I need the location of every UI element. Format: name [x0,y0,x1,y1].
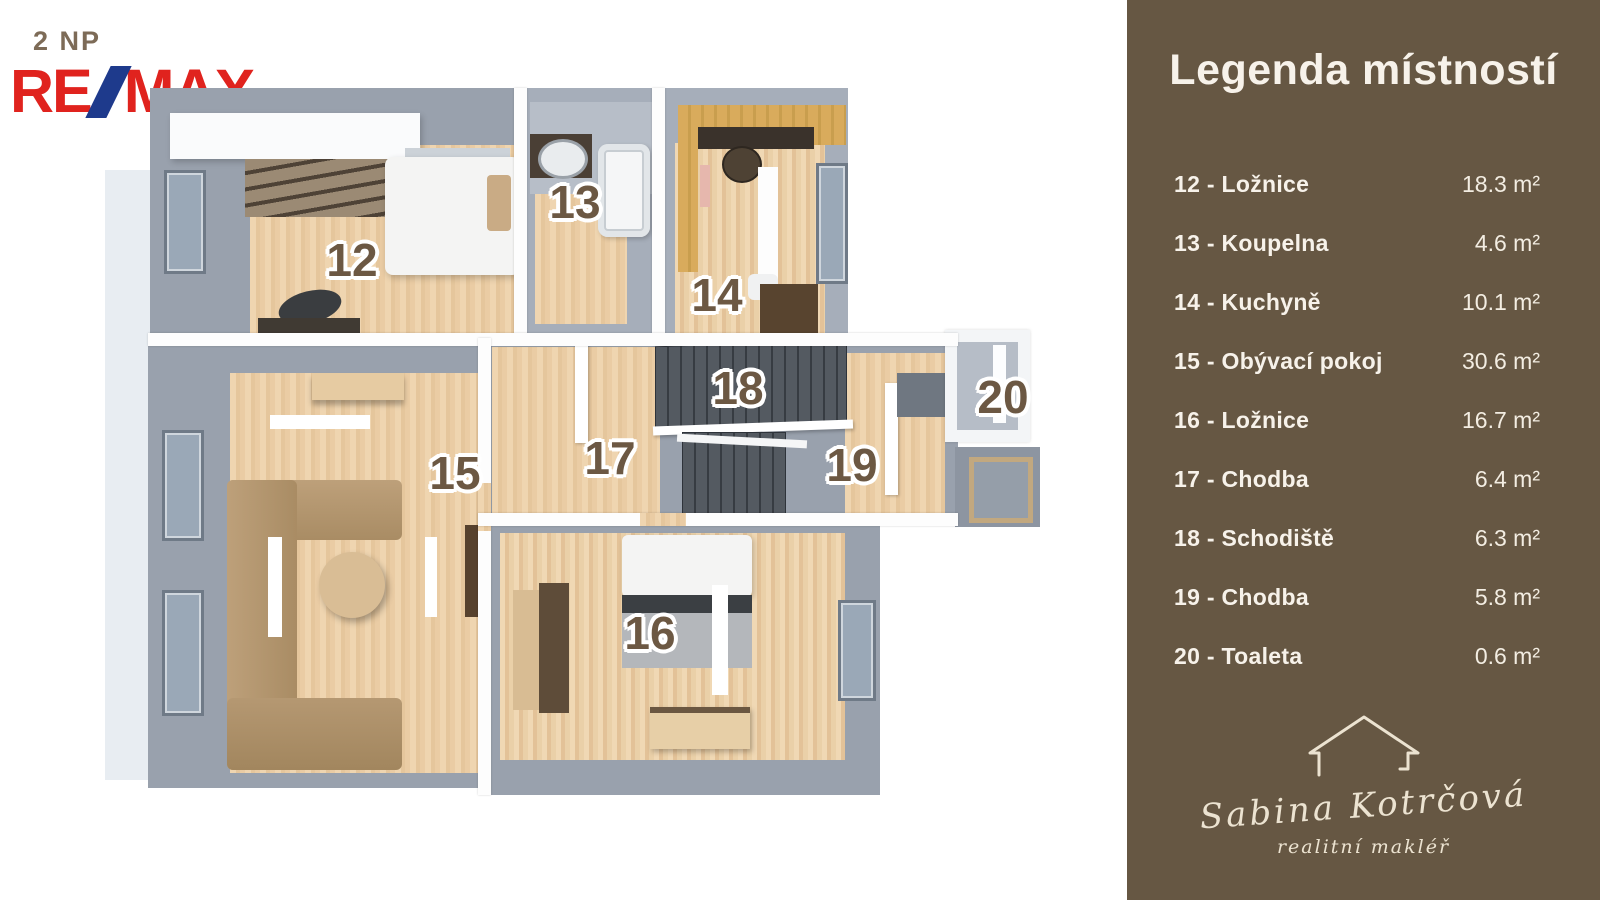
legend-room-label: 14 - Kuchyně [1174,291,1321,314]
rug-strip [268,537,282,637]
room-label-18: 18 [712,361,763,415]
bathtub [598,144,650,237]
legend-room-area: 16.7 m² [1462,409,1540,432]
room-15-living-room [148,338,490,788]
legend-room-label: 17 - Chodba [1174,468,1309,491]
legend-room-area: 0.6 m² [1475,645,1540,668]
page-canvas: 2 NP REMAX [0,0,1600,900]
legend-list: 12 - Ložnice 18.3 m² 13 - Koupelna 4.6 m… [1127,173,1600,668]
legend-room-label: 16 - Ložnice [1174,409,1309,432]
wardrobe [170,113,420,159]
wall-corridor-room16 [478,513,958,526]
window-icon [162,590,204,716]
kitchen-counter [698,127,814,149]
closet-block [955,447,1040,527]
legend-row-18: 18 - Schodiště 6.3 m² [1174,527,1540,550]
legend-row-13: 13 - Koupelna 4.6 m² [1174,232,1540,255]
legend-room-area: 5.8 m² [1475,586,1540,609]
legend-room-area: 6.4 m² [1475,468,1540,491]
legend-title: Legenda místností [1127,46,1600,95]
wall-room12-room13 [514,88,527,338]
house-outline-icon [1304,711,1424,777]
pillow [487,175,511,231]
room-label-20: 20 [977,370,1028,424]
room-16-bedroom [480,518,880,795]
sink-basin [538,139,588,179]
legend-room-area: 18.3 m² [1462,173,1540,196]
agent-signature: Sabina Kotrčová realitní makléř [1127,711,1600,858]
legend-panel: Legenda místností 12 - Ložnice 18.3 m² 1… [1127,0,1600,900]
rug-strip [425,537,437,617]
legend-room-area: 6.3 m² [1475,527,1540,550]
legend-row-19: 19 - Chodba 5.8 m² [1174,586,1540,609]
room-label-14: 14 [691,268,742,322]
room-12-bedroom [150,88,522,338]
agent-role: realitní makléř [1127,836,1600,858]
window-icon [838,600,876,701]
legend-room-area: 4.6 m² [1475,232,1540,255]
wardrobe-doors [539,583,569,713]
room-label-17: 17 [584,431,635,485]
legend-room-label: 20 - Toaleta [1174,645,1302,668]
window-icon [969,457,1033,523]
floor-label: 2 NP [33,26,101,57]
room-label-12: 12 [326,233,377,287]
coffee-table [319,552,385,618]
agent-name: Sabina Kotrčová [1126,770,1600,843]
wall-living-corridor [478,338,491,795]
window-icon [164,170,206,274]
pink-appliance [700,165,710,207]
remax-logo-re: RE [10,57,91,125]
legend-room-label: 13 - Koupelna [1174,232,1329,255]
wardrobe-open [513,590,539,710]
legend-row-15: 15 - Obývací pokoj 30.6 m² [1174,350,1540,373]
wall-niche [897,373,952,417]
legend-room-label: 12 - Ložnice [1174,173,1309,196]
window-icon [816,163,848,284]
balcony [105,170,150,780]
legend-row-20: 20 - Toaleta 0.6 m² [1174,645,1540,668]
bed-pillows [622,535,752,597]
legend-row-14: 14 - Kuchyně 10.1 m² [1174,291,1540,314]
door-leaf [575,343,588,443]
floorplan-render: 12 13 14 15 16 17 18 19 20 [100,85,1060,800]
room-14-kitchen [660,88,848,346]
legend-room-label: 18 - Schodiště [1174,527,1334,550]
dining-table [760,284,818,336]
room-label-15: 15 [429,446,480,500]
bed-runner [712,585,728,695]
kitchen-cabinets-left [678,105,698,272]
legend-row-12: 12 - Ložnice 18.3 m² [1174,173,1540,196]
legend-room-area: 10.1 m² [1462,291,1540,314]
wall-room13-room14 [652,88,665,346]
wall-column [758,167,778,282]
dresser [650,707,750,749]
room-label-16: 16 [624,606,675,660]
window-icon [162,430,204,541]
legend-room-label: 19 - Chodba [1174,586,1309,609]
wall-top-middle [148,333,958,346]
room-label-13: 13 [549,175,600,229]
shelving [245,159,405,217]
legend-row-16: 16 - Ložnice 16.7 m² [1174,409,1540,432]
tv-shelf [270,415,370,429]
room-label-19: 19 [826,438,877,492]
sofa-bottom-arm [227,698,402,770]
legend-row-17: 17 - Chodba 6.4 m² [1174,468,1540,491]
legend-room-label: 15 - Obývací pokoj [1174,350,1383,373]
legend-room-area: 30.6 m² [1462,350,1540,373]
kitchen-sink [722,146,762,183]
door-opening [640,513,686,526]
sideboard [312,373,404,400]
